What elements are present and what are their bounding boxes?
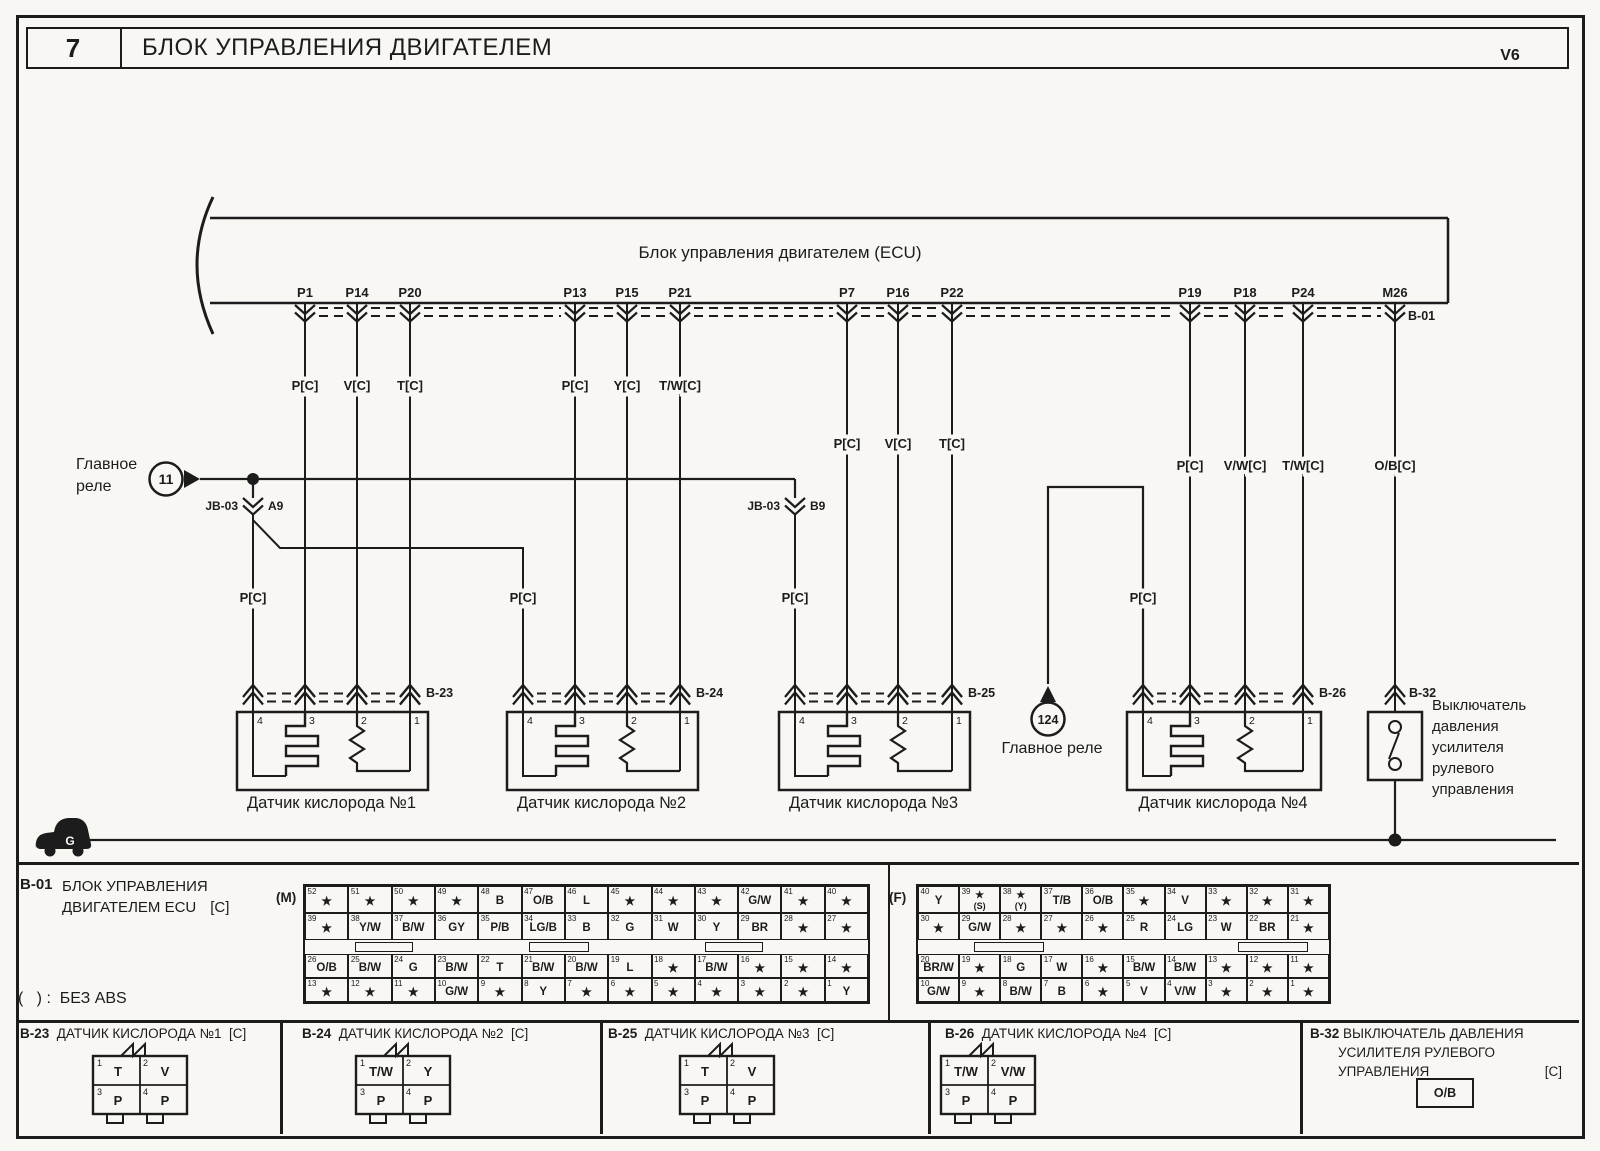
pin-number: 13 [1208, 955, 1217, 964]
pin-number: 38 [1003, 887, 1012, 896]
pin-wire-color: V [1181, 892, 1189, 907]
sensor-box [507, 712, 698, 790]
pin-cell: 50★ [392, 886, 435, 913]
wire-color-label: P[C] [240, 590, 267, 605]
oxygen-sensor-1: B-234321Датчик кислорода №1 [237, 685, 453, 812]
sensor-pin-number: 1 [1307, 715, 1313, 727]
pin-cell: 8Y [522, 978, 565, 1002]
pin-number: 43 [697, 887, 706, 896]
pin-cell: 5★ [652, 978, 695, 1002]
pin-number: 39 [308, 914, 317, 923]
pin-number: 51 [351, 887, 360, 896]
cell-divider [1300, 1022, 1303, 1134]
pin-cell: 16★ [1082, 954, 1123, 978]
pin-number: 26 [1085, 914, 1094, 923]
pin-cell: 10G/W [918, 978, 959, 1002]
connector-pin-color: P [701, 1093, 710, 1108]
pin-cell: 33★ [1206, 886, 1247, 913]
connector-key-slot [705, 942, 763, 952]
connector-pin-color: T [701, 1064, 709, 1079]
relay-label: Главное реле [1001, 740, 1102, 757]
circuit-ref-number: 11 [159, 471, 174, 487]
sensor-pin-number: 1 [414, 715, 420, 727]
connector-tab [734, 1114, 750, 1123]
pin-number: 28 [1003, 914, 1012, 923]
sensor-pin-number: 3 [851, 715, 857, 727]
pin-wire-color: W [1056, 959, 1067, 974]
pin-cell: 13★ [1206, 954, 1247, 978]
pin-number: 50 [394, 887, 403, 896]
ecu-pin-label: P18 [1233, 285, 1256, 300]
ecu-pin-label: P13 [563, 285, 586, 300]
wire [1389, 733, 1399, 759]
wire-color-label: P[C] [562, 378, 589, 393]
pin-number: 24 [1167, 914, 1176, 923]
connector-cell-title: B-26 ДАТЧИК КИСЛОРОДА №4 [C] [945, 1026, 1171, 1041]
pin-wire-color: ★ [321, 918, 332, 935]
switch-label-line: управления [1432, 781, 1514, 798]
connector-id: B-25 [608, 1026, 637, 1041]
relay-label: Главное [76, 456, 137, 473]
connector-id: B-24 [302, 1026, 331, 1041]
connector-pin-number: 2 [991, 1058, 996, 1068]
ecu-pin-label: P15 [615, 285, 638, 300]
pin-cell: 23W [1206, 913, 1247, 940]
pin-cell: 1Y [825, 978, 868, 1002]
pin-cell: 34LG/B [522, 913, 565, 940]
pin-cell: 18★ [652, 954, 695, 978]
connector-pin-number: 1 [684, 1058, 689, 1068]
sensor-box [779, 712, 970, 790]
connector-key-row [305, 940, 868, 954]
car-wheel-icon [45, 846, 56, 857]
pin-number: 46 [567, 887, 576, 896]
pin-wire-color: LG/B [529, 919, 556, 934]
m-connector-pin-table: 52★51★50★49★48B47O/B46L45★44★43★42G/W41★… [303, 884, 870, 1004]
pin-number: 25 [1126, 914, 1135, 923]
oxygen-sensor-3: B-254321Датчик кислорода №3 [779, 685, 995, 812]
pin-wire-color: ★ [321, 891, 332, 908]
pin-number: 17 [697, 955, 706, 964]
connector-pin-number: 1 [97, 1058, 102, 1068]
pin-number: 41 [784, 887, 793, 896]
connector-id: B-26 [945, 1026, 974, 1041]
pin-wire-color: ★ [841, 958, 852, 975]
wire-color-label: P[C] [1130, 590, 1157, 605]
pin-wire-color: GY [448, 919, 465, 934]
pin-wire-color: L [626, 959, 633, 974]
connector-pin-color: T/W [954, 1064, 979, 1079]
pin-cell: 38Y/W [348, 913, 391, 940]
connector-pin-color: P [161, 1093, 170, 1108]
pin-number: 29 [741, 914, 750, 923]
ground-letter: G [65, 834, 74, 848]
pin-table-row: 30★29G/W28★27★26★25R24LG23W22BR21★ [918, 913, 1329, 940]
pin-cell: 23B/W [435, 954, 478, 978]
sensor-pin-number: 3 [1194, 715, 1200, 727]
pin-cell: 33B [565, 913, 608, 940]
wire-color-label: T[C] [939, 436, 965, 451]
connector-key-slot [1238, 942, 1308, 952]
pin-number: 27 [1044, 914, 1053, 923]
b01-title-line2: ДВИГАТЕЛЕМ ECU [62, 899, 196, 916]
pin-table-row: 13★12★11★10G/W9★8Y7★6★5★4★3★2★1Y [305, 978, 868, 1002]
connector-pin-number: 4 [406, 1087, 411, 1097]
pin-cell: 51★ [348, 886, 391, 913]
pin-wire-color: B/W [575, 959, 597, 974]
sensor-label: Датчик кислорода №4 [1138, 794, 1307, 812]
pin-cell: 24LG [1165, 913, 1206, 940]
connector-suffix: [C] [817, 1026, 834, 1041]
pin-cell: 34V [1165, 886, 1206, 913]
pin-cell: 46L [565, 886, 608, 913]
pin-cell: 15B/W [1123, 954, 1164, 978]
pin-wire-color: LG [1177, 919, 1193, 934]
pin-number: 35 [481, 914, 490, 923]
pin-number: 14 [1167, 955, 1176, 964]
pin-wire-color: Y [935, 892, 943, 907]
connector-key-slot [529, 942, 589, 952]
pin-number: 2 [784, 979, 788, 988]
connector-tab [107, 1114, 123, 1123]
junction-pin-label: A9 [268, 499, 284, 513]
pin-table-row: 10G/W9★8B/W7B6★5V4V/W3★2★1★ [918, 978, 1329, 1002]
pin-number: 30 [697, 914, 706, 923]
pin-wire-color: ★ [365, 982, 376, 999]
pin-wire-color: ★ [1262, 958, 1273, 975]
pin-number: 42 [741, 887, 750, 896]
connector-pin-color: P [424, 1093, 433, 1108]
connector-latch-icon [384, 1044, 408, 1056]
pin-number: 16 [741, 955, 750, 964]
pin-cell: 31W [652, 913, 695, 940]
pin-cell: 22T [478, 954, 521, 978]
connector-name: ВЫКЛЮЧАТЕЛЬ ДАВЛЕНИЯ [1343, 1026, 1524, 1041]
pin-wire-color: G/W [968, 919, 991, 934]
connector-suffix: [C] [1545, 1062, 1562, 1081]
connector-pin-color: T/W [369, 1064, 394, 1079]
pin-wire-color: ★ [974, 958, 985, 975]
pin-number: 36 [437, 914, 446, 923]
pin-cell: 5V [1123, 978, 1164, 1002]
connector-id: B-23 [20, 1026, 49, 1041]
pin-wire-color: ★ [495, 982, 506, 999]
sensor-connector-id: B-23 [426, 686, 453, 700]
connector-name: ДАТЧИК КИСЛОРОДА №2 [339, 1026, 504, 1041]
pin-wire-color: ★ [754, 958, 765, 975]
pin-cell: 3★ [1206, 978, 1247, 1002]
pin-cell: 17W [1041, 954, 1082, 978]
pin-number: 31 [1290, 887, 1299, 896]
section-divider [16, 1020, 1579, 1023]
wiring-diagram-page: 7 БЛОК УПРАВЛЕНИЯ ДВИГАТЕЛЕМ V6 Блок упр… [0, 0, 1600, 1151]
pin-wire-color: V/W [1174, 983, 1196, 998]
pressure-switch: B-32Выключательдавленияусилителярулевого… [1368, 686, 1526, 847]
table-divider [888, 864, 890, 1020]
pin-table-row: 39★38Y/W37B/W36GY35P/B34LG/B33B32G31W30Y… [305, 913, 868, 940]
pin-wire-color: T [496, 959, 503, 974]
wire-path [1238, 712, 1303, 771]
pin-cell: 41★ [781, 886, 824, 913]
pin-cell: 30★ [918, 913, 959, 940]
pin-wire-color: W [668, 919, 679, 934]
pin-wire-color: B [496, 892, 504, 907]
pin-cell: 36O/B [1082, 886, 1123, 913]
pin-cell: 49★ [435, 886, 478, 913]
pin-number: 5 [1126, 979, 1130, 988]
pin-wire-color: ★ [798, 982, 809, 999]
pin-wire-color: ★ [1139, 891, 1150, 908]
pin-cell: 35P/B [478, 913, 521, 940]
b32-connector-face: O/B [1416, 1078, 1474, 1108]
pin-number: 20 [567, 955, 576, 964]
connector-pin-number: 2 [143, 1058, 148, 1068]
pin-wire-color: ★ [711, 891, 722, 908]
pin-wire-color: ★ [581, 982, 592, 999]
ground-line: G [36, 818, 1556, 857]
sensor-pin-number: 4 [527, 715, 533, 727]
sensor-pin-number: 4 [1147, 715, 1153, 727]
pin-cell: 38★(Y) [1000, 886, 1041, 913]
pin-cell: 21B/W [522, 954, 565, 978]
pin-number: 19 [962, 955, 971, 964]
sensor-pin-number: 3 [309, 715, 315, 727]
pin-cell: 20BR/W [918, 954, 959, 978]
pin-cell: 2★ [781, 978, 824, 1002]
pin-wire-color: Y [713, 919, 721, 934]
pin-cell: 14★ [825, 954, 868, 978]
pin-wire-color: ★ [798, 958, 809, 975]
pin-cell: 9★ [959, 978, 1000, 1002]
pin-cell: 36GY [435, 913, 478, 940]
pin-cell: 24G [392, 954, 435, 978]
wire-path [620, 712, 680, 771]
sensor-pin-number: 4 [799, 715, 805, 727]
pin-table-row: 26O/B25B/W24G23B/W22T21B/W20B/W19L18★17B… [305, 954, 868, 978]
pin-number: 11 [1290, 955, 1298, 964]
pin-cell: 25B/W [348, 954, 391, 978]
pin-number: 45 [611, 887, 620, 896]
switch-contact [1389, 758, 1401, 770]
cell-divider [280, 1022, 283, 1134]
wire-color-label: V/W[C] [1224, 458, 1267, 473]
sensor-pin-number: 2 [361, 715, 367, 727]
sensor-pin-number: 1 [684, 715, 690, 727]
pin-wire-color: Y/W [359, 919, 381, 934]
pin-cell: 40★ [825, 886, 868, 913]
pin-number: 49 [437, 887, 446, 896]
pin-wire-color: B/W [359, 959, 381, 974]
switch-label-line: рулевого [1432, 760, 1494, 777]
pin-cell: 26★ [1082, 913, 1123, 940]
connector-cell-title: B-23 ДАТЧИК КИСЛОРОДА №1 [C] [20, 1026, 246, 1041]
main-relay-124: P[C]124Главное реле [1001, 487, 1156, 757]
switch-label-line: Выключатель [1432, 697, 1526, 714]
junction-pin-label: B9 [810, 499, 826, 513]
pin-wire-color: ★ [1221, 891, 1232, 908]
pin-number: 11 [394, 979, 402, 988]
pin-number: 30 [921, 914, 930, 923]
pin-wire-color: ★ [933, 918, 944, 935]
pin-number: 3 [1208, 979, 1212, 988]
pin-number: 38 [351, 914, 360, 923]
pin-wire-color: ★ [321, 982, 332, 999]
pin-cell: 32★ [1247, 886, 1288, 913]
pin-cell: 43★ [695, 886, 738, 913]
b01-connector-title: БЛОК УПРАВЛЕНИЯ ДВИГАТЕЛЕМ ECU[C] [62, 876, 229, 918]
sensor-connector-id: B-24 [696, 686, 723, 700]
connector-pin-color: T [114, 1064, 122, 1079]
wire-color-label: O/B[C] [1374, 458, 1415, 473]
switch-label-line: усилителя [1432, 739, 1504, 756]
pin-wire-color: ★ [624, 982, 635, 999]
connector-key-slot [974, 942, 1044, 952]
pin-cell: 29G/W [959, 913, 1000, 940]
pin-number: 21 [524, 955, 533, 964]
pin-wire-color: O/B [533, 892, 553, 907]
pin-cell: 19L [608, 954, 651, 978]
ecu-pin-label: P16 [886, 285, 909, 300]
pin-wire-color: ★ [668, 982, 679, 999]
connector-pin-number: 4 [143, 1087, 148, 1097]
wire-path [36, 818, 91, 849]
pin-number: 9 [481, 979, 485, 988]
connector-pin-number: 3 [360, 1087, 365, 1097]
connector-pin-number: 3 [97, 1087, 102, 1097]
pin-number: 25 [351, 955, 360, 964]
pin-number: 1 [1290, 979, 1294, 988]
f-connector-pin-table: 40Y39★(S)38★(Y)37T/B36O/B35★34V33★32★31★… [916, 884, 1331, 1004]
sensor-pin-number: 2 [902, 715, 908, 727]
pin-wire-color: G [625, 919, 634, 934]
pin-wire-color: ★ [1015, 918, 1026, 935]
pin-number: 23 [1208, 914, 1217, 923]
pin-wire-color: BR [751, 919, 768, 934]
pin-number: 6 [1085, 979, 1089, 988]
b32-cell-title: B-32 ВЫКЛЮЧАТЕЛЬ ДАВЛЕНИЯУСИЛИТЕЛЯ РУЛЕВ… [1310, 1024, 1572, 1081]
pin-wire-color: B/W [532, 959, 554, 974]
pin-number: 40 [921, 887, 930, 896]
pin-cell: 11★ [1288, 954, 1329, 978]
sensor-connector-face: 1T/W2Y3P4P [343, 1040, 463, 1126]
pin-wire-color: ★ [1303, 918, 1314, 935]
pin-cell: 32G [608, 913, 651, 940]
connector-cell-title: B-24 ДАТЧИК КИСЛОРОДА №2 [C] [302, 1026, 528, 1041]
pin-wire-color: ★ [668, 891, 679, 908]
relay-label: реле [76, 478, 112, 495]
wire-path [891, 712, 952, 771]
connector-pin-number: 4 [991, 1087, 996, 1097]
pin-cell: 21★ [1288, 913, 1329, 940]
pin-cell: 27★ [825, 913, 868, 940]
pin-cell: 8B/W [1000, 978, 1041, 1002]
pin-cell: 4★ [695, 978, 738, 1002]
connector-suffix: [C] [1154, 1026, 1171, 1041]
m-connector-label: (M) [276, 890, 296, 905]
pin-cell: 35★ [1123, 886, 1164, 913]
pin-cell: 27★ [1041, 913, 1082, 940]
pin-cell: 7B [1041, 978, 1082, 1002]
connector-pin-color: P [748, 1093, 757, 1108]
pin-wire-color: G/W [748, 892, 771, 907]
connector-suffix: [C] [511, 1026, 528, 1041]
pin-wire-color: G/W [927, 983, 950, 998]
wire-color-label: P[C] [834, 436, 861, 451]
pin-number: 5 [654, 979, 658, 988]
pin-cell: 47O/B [522, 886, 565, 913]
pin-wire-color: B/W [1010, 983, 1032, 998]
junction-block-label: JB-03 [747, 499, 780, 513]
pin-wire-color: B/W [402, 919, 424, 934]
b01-title-line1: БЛОК УПРАВЛЕНИЯ [62, 876, 229, 897]
pin-cell: 17B/W [695, 954, 738, 978]
pin-cell: 29BR [738, 913, 781, 940]
wire-color-label: P[C] [782, 590, 809, 605]
pin-wire-color: O/B [1093, 892, 1113, 907]
pin-cell: 52★ [305, 886, 348, 913]
wire-path [253, 520, 523, 712]
pin-wire-color: ★ [408, 982, 419, 999]
pin-number: 52 [308, 887, 317, 896]
connector-chevron-icon [785, 498, 805, 507]
pin-number: 23 [437, 955, 446, 964]
switch-contact [1389, 721, 1401, 733]
sensor-connector-face: 1T2V3P4P [667, 1040, 787, 1126]
wire-color-label: P[C] [1177, 458, 1204, 473]
wire-color-label: P[C] [292, 378, 319, 393]
pin-wire-color: ★ [1016, 891, 1025, 901]
pin-number: 47 [524, 887, 533, 896]
pin-wire-color: ★ [668, 958, 679, 975]
wire-color-label: P[C] [510, 590, 537, 605]
connector-pin-number: 2 [406, 1058, 411, 1068]
pin-cell: 18G [1000, 954, 1041, 978]
pin-number: 27 [827, 914, 836, 923]
pin-number: 33 [1208, 887, 1217, 896]
sensor-pin-number: 1 [956, 715, 962, 727]
ecu-pin-label: P20 [398, 285, 421, 300]
pin-number: 48 [481, 887, 490, 896]
b01-suffix: [C] [210, 899, 229, 916]
pin-wire-color: G/W [445, 983, 468, 998]
sensor-pin-number: 3 [579, 715, 585, 727]
pin-wire-color: G [1016, 959, 1025, 974]
pin-wire-color: Y [843, 983, 851, 998]
pin-cell: 14B/W [1165, 954, 1206, 978]
connector-name: УСИЛИТЕЛЯ РУЛЕВОГО [1310, 1043, 1572, 1062]
pin-cell: 19★ [959, 954, 1000, 978]
pin-wire-color: ★ [974, 982, 985, 999]
connector-pin-number: 3 [684, 1087, 689, 1097]
pin-number: 31 [654, 914, 663, 923]
pin-wire-color: ★ [1303, 891, 1314, 908]
arrow-icon [1040, 686, 1056, 702]
connector-pin-color: P [377, 1093, 386, 1108]
pin-cell: 9★ [478, 978, 521, 1002]
pin-number: 12 [351, 979, 360, 988]
ecu-pin-label: P22 [940, 285, 963, 300]
pin-number: 28 [784, 914, 793, 923]
pin-wire-color: ★ [841, 891, 852, 908]
pin-number: 18 [1003, 955, 1012, 964]
pin-cell: 11★ [392, 978, 435, 1002]
ecu-pin-label: P24 [1291, 285, 1315, 300]
connector-cell-title: B-25 ДАТЧИК КИСЛОРОДА №3 [C] [608, 1026, 834, 1041]
pin-number: 21 [1290, 914, 1299, 923]
connector-name: ДАТЧИК КИСЛОРОДА №3 [645, 1026, 810, 1041]
sensor-pin-number: 2 [1249, 715, 1255, 727]
pin-wire-color: B/W [1133, 959, 1155, 974]
